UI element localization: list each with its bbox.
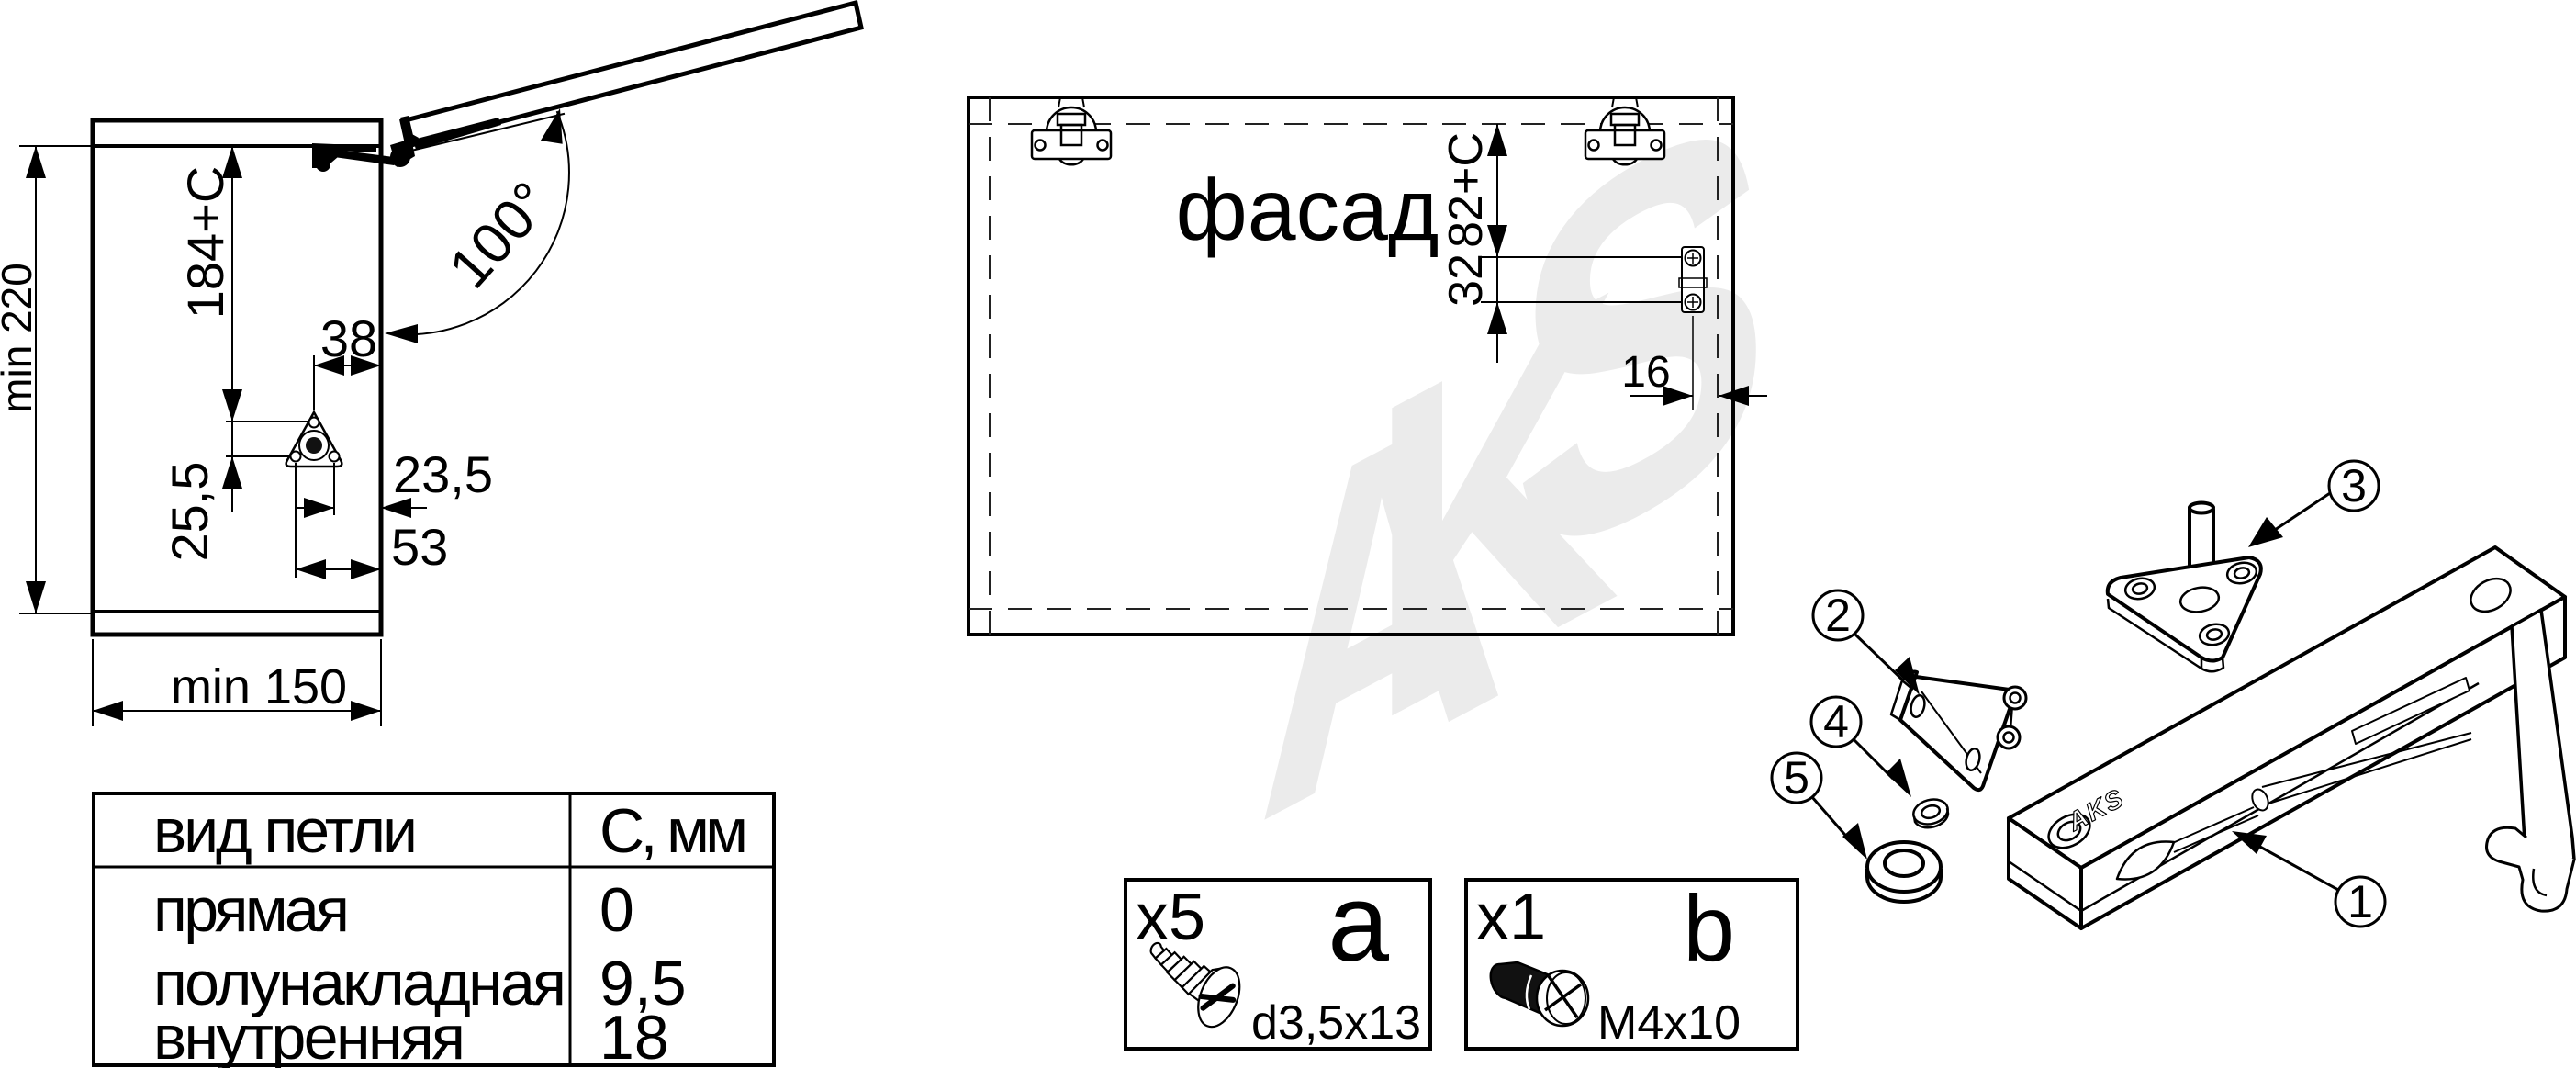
svg-text:4: 4 bbox=[1823, 696, 1849, 748]
svg-text:внутренняя: внутренняя bbox=[153, 1003, 465, 1068]
svg-text:18: 18 bbox=[599, 1003, 669, 1068]
svg-text:С, мм: С, мм bbox=[599, 796, 748, 866]
svg-text:0: 0 bbox=[599, 875, 634, 945]
svg-text:16: 16 bbox=[1621, 348, 1670, 397]
svg-text:184+C: 184+C bbox=[176, 166, 234, 320]
svg-text:a: a bbox=[1327, 861, 1389, 984]
svg-text:min 220: min 220 bbox=[0, 263, 40, 413]
svg-text:min 150: min 150 bbox=[171, 659, 347, 714]
svg-text:прямая: прямая bbox=[153, 875, 350, 945]
svg-text:2: 2 bbox=[1825, 590, 1851, 641]
svg-text:d3,5x13: d3,5x13 bbox=[1251, 996, 1421, 1050]
svg-text:53: 53 bbox=[391, 518, 448, 576]
svg-text:82+C: 82+C bbox=[1439, 132, 1493, 248]
svg-text:x5: x5 bbox=[1136, 881, 1205, 954]
svg-text:3: 3 bbox=[2341, 460, 2367, 512]
svg-text:25,5: 25,5 bbox=[161, 462, 218, 562]
svg-text:фасад: фасад bbox=[1176, 162, 1439, 259]
svg-text:x1: x1 bbox=[1476, 881, 1546, 954]
svg-text:32: 32 bbox=[1439, 253, 1493, 307]
svg-text:23,5: 23,5 bbox=[393, 445, 493, 503]
svg-text:b: b bbox=[1683, 876, 1735, 981]
svg-text:вид петли: вид петли bbox=[153, 796, 418, 866]
svg-text:5: 5 bbox=[1784, 752, 1809, 804]
svg-text:38: 38 bbox=[320, 309, 377, 367]
svg-text:M4x10: M4x10 bbox=[1597, 996, 1741, 1050]
svg-text:1: 1 bbox=[2347, 876, 2373, 927]
